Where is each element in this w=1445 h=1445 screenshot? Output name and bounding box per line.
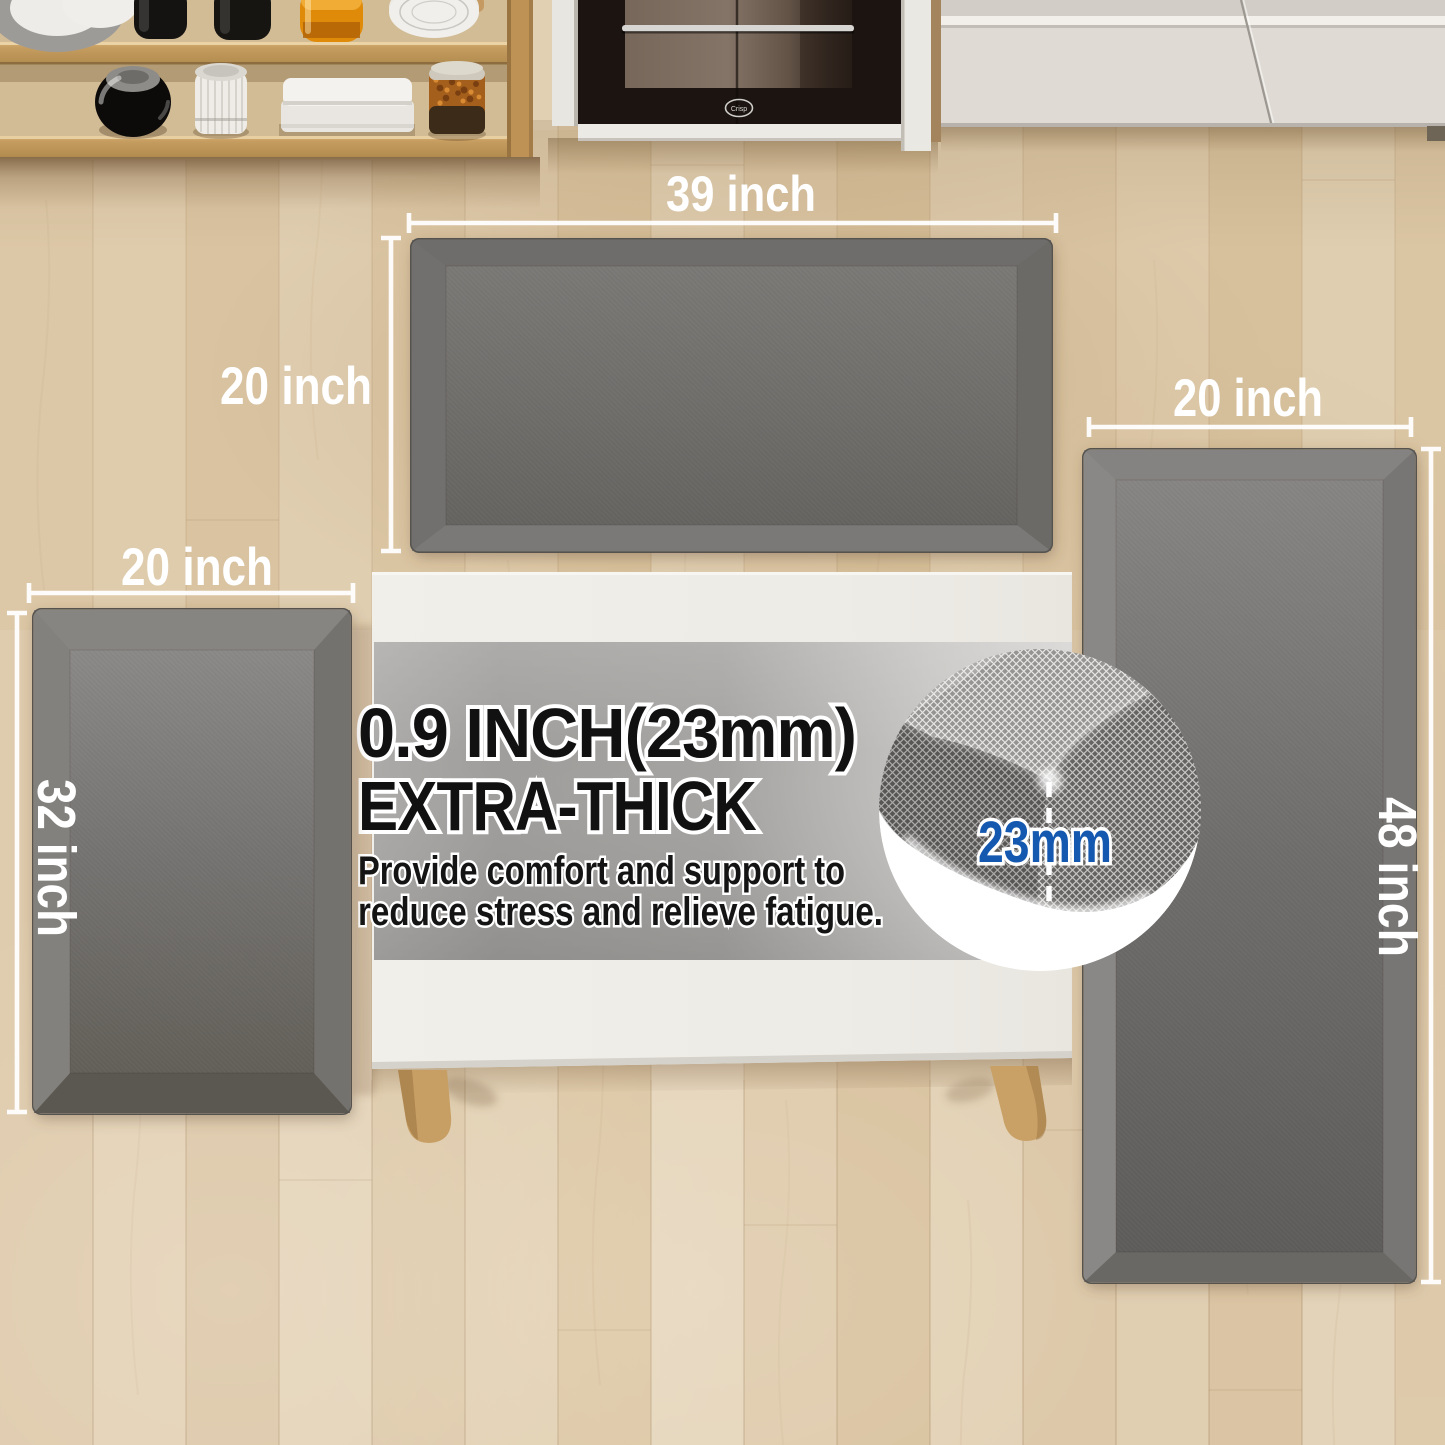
svg-text:reduce stress and relieve fati: reduce stress and relieve fatigue. (358, 890, 883, 934)
svg-text:20 inch: 20 inch (1173, 369, 1323, 428)
svg-text:Provide comfort and support to: Provide comfort and support to (358, 849, 845, 893)
svg-text:23mm: 23mm (978, 810, 1112, 875)
svg-text:20 inch: 20 inch (220, 357, 372, 416)
svg-text:39 inch: 39 inch (666, 166, 816, 222)
svg-text:Crisp: Crisp (731, 106, 747, 113)
svg-text:48 inch: 48 inch (1367, 797, 1427, 957)
svg-text:EXTRA-THICK: EXTRA-THICK (358, 767, 756, 845)
svg-text:0.9 INCH(23mm): 0.9 INCH(23mm) (358, 694, 856, 772)
svg-text:32 inch: 32 inch (26, 779, 86, 937)
svg-text:20 inch: 20 inch (121, 538, 273, 597)
